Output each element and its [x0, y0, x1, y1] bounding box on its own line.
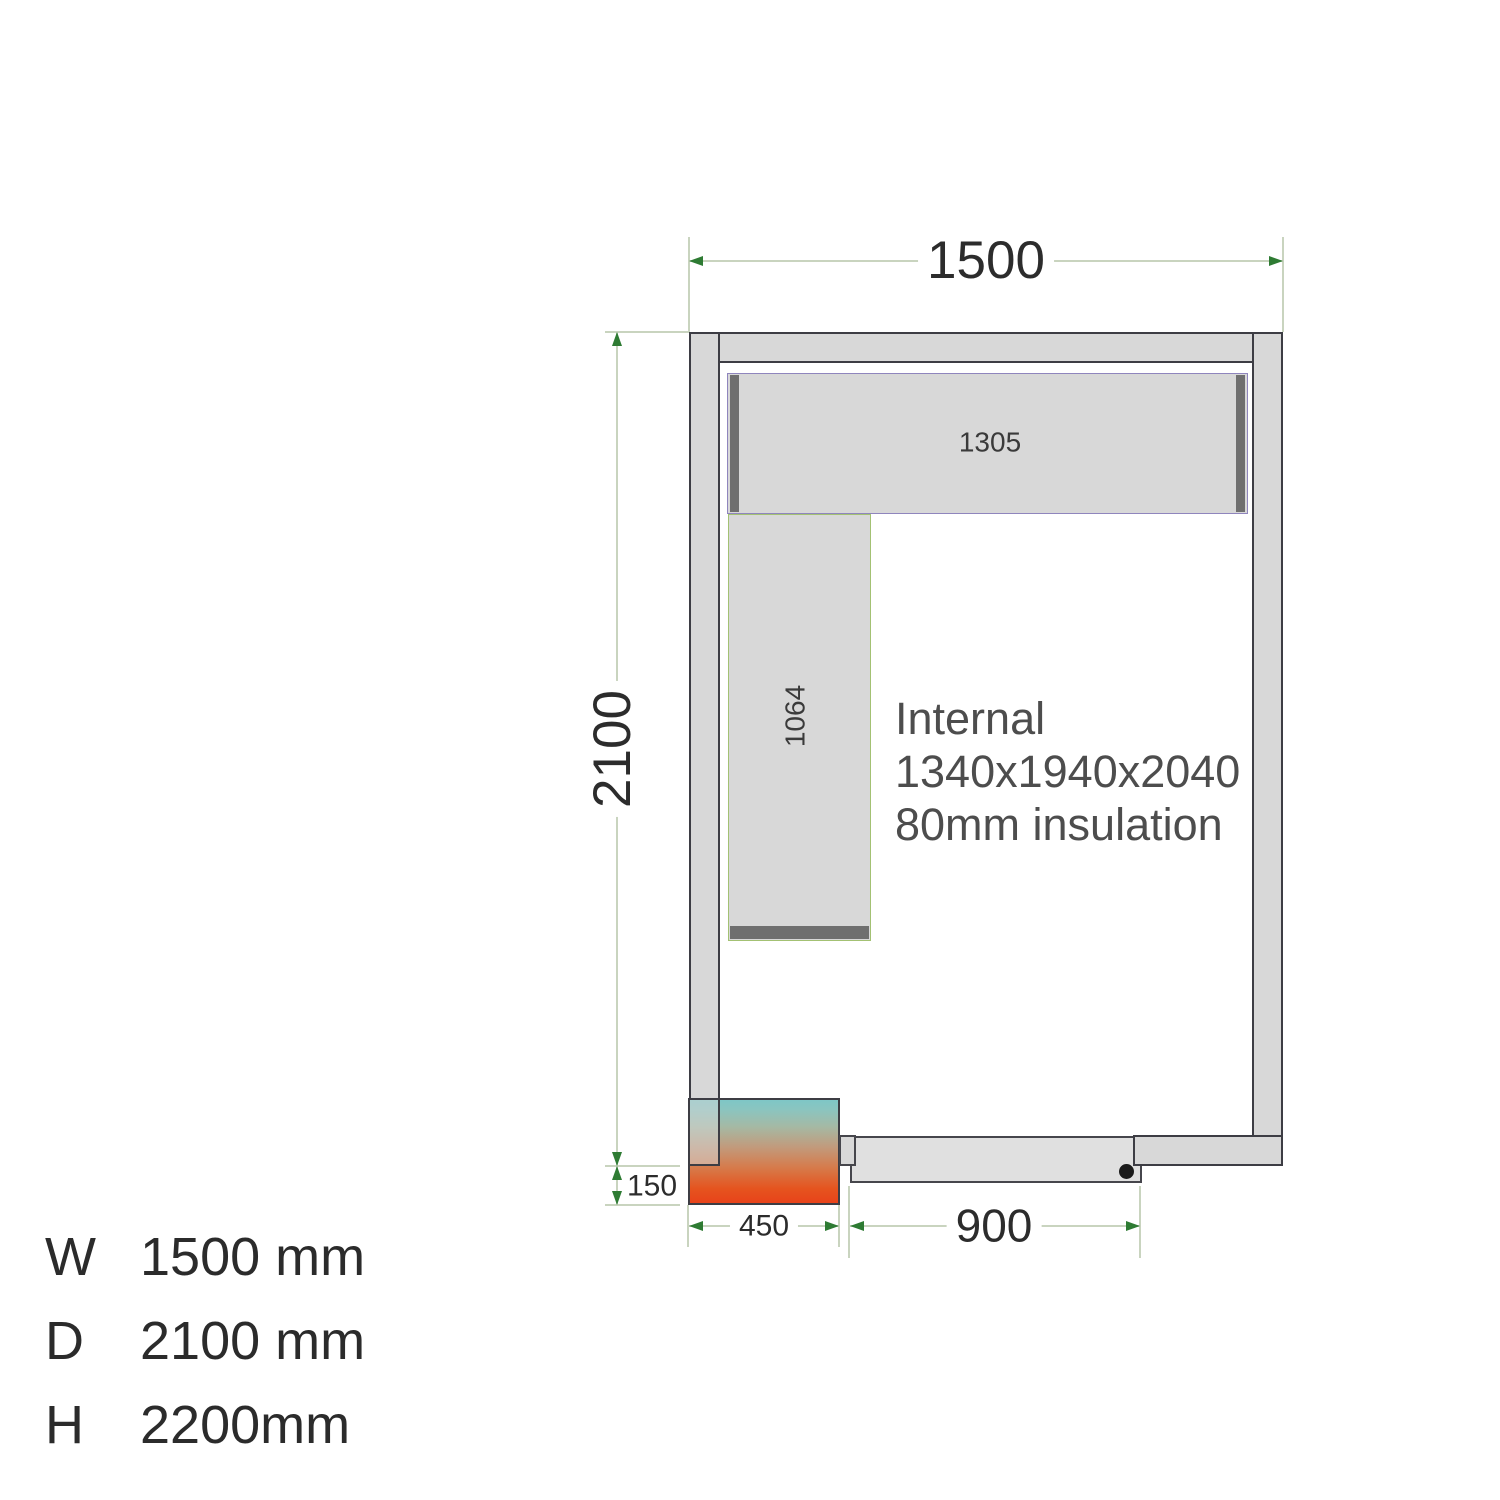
dim-label-unit-width: 450: [730, 1210, 798, 1243]
arrowhead-icon: [612, 332, 622, 346]
wall-over-unit-shade: [690, 1100, 718, 1164]
legend: W 1500 mm D 2100 mm H 2200mm: [45, 1215, 365, 1467]
legend-key: D: [45, 1310, 140, 1372]
door-pivot-dot: [1119, 1164, 1134, 1179]
dim-label-depth: 2100: [584, 681, 642, 817]
wall-top: [689, 332, 1283, 363]
sliding-door-panel: [850, 1136, 1142, 1183]
legend-key: W: [45, 1226, 140, 1288]
wall-left: [689, 332, 720, 1166]
legend-value: 2100 mm: [140, 1310, 365, 1372]
arrowhead-icon: [1126, 1221, 1140, 1231]
legend-key: H: [45, 1394, 140, 1456]
arrowhead-icon: [612, 1152, 622, 1166]
shelf-end-bar: [730, 375, 739, 512]
internal-note-line2: 1340x1940x2040: [895, 745, 1240, 798]
dim-label-plinth-offset: 150: [627, 1170, 677, 1203]
ext-line-1500-right: [1282, 237, 1284, 332]
dim-label-width: 1500: [918, 232, 1054, 290]
wall-right: [1252, 332, 1283, 1166]
arrowhead-icon: [689, 1221, 703, 1231]
arrowhead-icon: [1269, 256, 1283, 266]
arrowhead-icon: [612, 1166, 622, 1180]
internal-note: Internal 1340x1940x2040 80mm insulation: [895, 692, 1240, 851]
legend-value: 1500 mm: [140, 1226, 365, 1288]
shelf-side-length-label: 1064: [781, 685, 812, 747]
legend-value: 2200mm: [140, 1394, 350, 1456]
internal-note-line1: Internal: [895, 692, 1240, 745]
wall-bottom-right: [1133, 1135, 1283, 1166]
shelf-end-bar: [730, 926, 869, 939]
legend-row-depth: D 2100 mm: [45, 1299, 365, 1383]
shelf-top-length-label: 1305: [959, 428, 1021, 459]
wall-edge-line: [718, 1098, 720, 1166]
shelf-end-bar: [1236, 375, 1245, 512]
door-jamb-tab: [839, 1135, 856, 1166]
ext-line-1500-left: [688, 237, 690, 332]
arrowhead-icon: [825, 1221, 839, 1231]
wall-edge-line: [688, 1164, 720, 1166]
legend-row-width: W 1500 mm: [45, 1215, 365, 1299]
arrowhead-icon: [850, 1221, 864, 1231]
arrowhead-icon: [612, 1191, 622, 1205]
dim-label-door-width: 900: [947, 1201, 1042, 1252]
wall-edge-line: [688, 1098, 690, 1166]
legend-row-height: H 2200mm: [45, 1383, 365, 1467]
internal-note-line3: 80mm insulation: [895, 798, 1240, 851]
arrowhead-icon: [689, 256, 703, 266]
cold-room-plan-drawing: 1500 2100 150 450 900 1305 1064 Internal…: [0, 0, 1500, 1500]
